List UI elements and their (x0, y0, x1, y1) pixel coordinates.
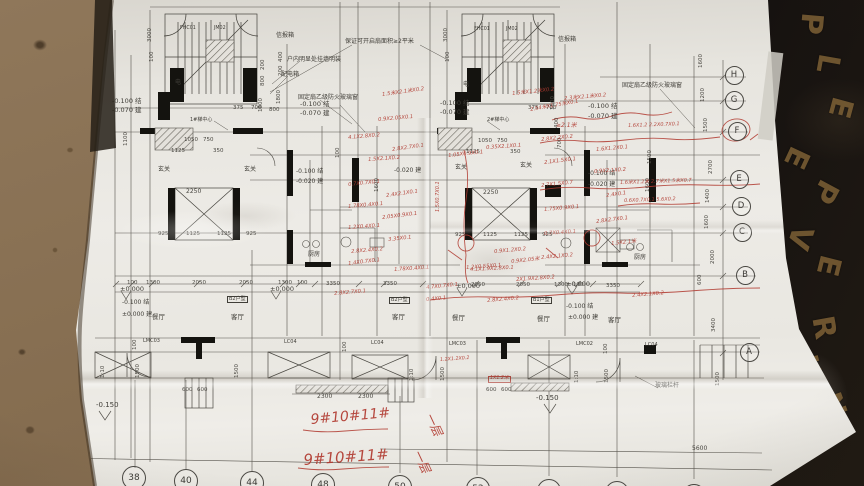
plan-label: -0.070 建 (588, 113, 618, 120)
plan-label: B1户型 (532, 298, 551, 303)
plan-label: 客厅 (231, 314, 244, 321)
plan-label: -0.020 建 (394, 168, 421, 174)
red-annotation: 1.2X1.2X0.2 (440, 357, 470, 364)
dim-label: 600 (197, 388, 208, 394)
red-annotation: 1.4X0.7X0.1 (348, 258, 380, 267)
dim-label: 100 (127, 281, 138, 287)
dim-label: 375 (233, 106, 244, 112)
dim-label: 1300 (278, 281, 292, 287)
grid-bubble-number: 44 (240, 471, 264, 486)
dim-label: 1125 (186, 232, 200, 238)
dim-label: 2300 (317, 394, 332, 400)
dim-label: 1500 (648, 150, 654, 164)
dim-label: 600 (698, 275, 704, 286)
plan-label: 信报箱 (558, 37, 576, 43)
red-annotation: 1.6X1.2 2.2X0.7X0.1 (628, 122, 680, 129)
plan-label: -0.100 结 (440, 100, 470, 107)
dim-label: 2050 (516, 283, 530, 289)
dim-label: 100 (446, 52, 452, 63)
plan-label: 固定扇乙级防火玻璃窗 (622, 83, 682, 89)
plan-label: 餐厅 (537, 316, 550, 323)
dim-label: 1100 (124, 132, 130, 146)
board-letter: R (804, 313, 842, 342)
grid-bubble-number: 40 (174, 469, 198, 486)
dim-label: 600 (486, 388, 497, 394)
board-letter: P (793, 11, 830, 36)
red-annotation: 1.5X2.1米 (611, 239, 637, 247)
plan-label: -0.100 结 (300, 101, 330, 108)
dim-label: 1500 (136, 364, 142, 378)
red-annotation: 一层 (423, 411, 444, 438)
plan-label: LC04 (371, 341, 384, 346)
red-annotation: 2.8X2.7X0.1 (334, 289, 366, 297)
red-annotation: 1.5X0.7X0.1 (436, 181, 441, 212)
plan-label: 信报箱 (276, 33, 294, 39)
dim-label: 1300 (554, 283, 568, 289)
drawing-sheet: 信报箱信报箱保证可开启扇面积≥2平米户内明显处挂墙明装配电箱固定扇乙级防火玻璃窗… (0, 0, 864, 486)
red-annotation: 0.4X0.1 (426, 296, 446, 303)
red-annotation: 0.9X1.2X0.2 (494, 247, 526, 255)
dim-label: 350 (510, 150, 521, 156)
dim-label: 100 (604, 344, 610, 355)
dim-label: 5600 (692, 446, 707, 452)
dim-label: 2050 (192, 281, 206, 287)
dim-label: 2700 (709, 160, 715, 174)
board-letter: L (809, 51, 847, 76)
grid-bubble-number: 52 (466, 477, 490, 486)
dim-label: 400 (279, 52, 285, 63)
red-annotation: 1.78X0.4X0.1 (348, 202, 383, 210)
plan-label: ±0.000 建 (122, 312, 152, 318)
dim-label: 600 (501, 388, 512, 394)
red-annotation: 4.1X2.8X0.2 (348, 133, 380, 141)
plan-label: -0.020 建 (296, 179, 323, 185)
red-annotation: 9#10#11# (310, 406, 391, 427)
dim-label: 1600 (705, 215, 711, 229)
dim-label: 3000 (444, 28, 450, 42)
plan-label: 餐厅 (452, 315, 465, 322)
red-annotation: 3.35X0.1 (388, 236, 412, 244)
plan-label: 户内明显处挂墙明装 (287, 57, 341, 63)
dim-label: 600 (182, 388, 193, 394)
dim-label: 1800 (277, 90, 283, 104)
dim-label: 1500 (605, 369, 611, 383)
red-annotation: 2.4X2.1X0.2 (541, 253, 573, 261)
dim-label: 1200 (701, 88, 707, 102)
plan-label: B2户型 (228, 297, 247, 302)
plan-label: 玻璃栏杆 (655, 383, 679, 389)
plan-label: LMC03 (143, 339, 160, 344)
red-annotation: 2.3米X2.1米X0.2 (564, 93, 607, 102)
dim-label: 1400 (706, 189, 712, 203)
plan-label: 客厅 (608, 317, 621, 324)
dim-label: 1:10 (575, 371, 581, 383)
plan-label: LC04 (645, 343, 658, 348)
grid-bubble-letter: H (725, 66, 744, 85)
photo-of-floor-plan: 信报箱信报箱保证可开启扇面积≥2平米户内明显处挂墙明装配电箱固定扇乙级防火玻璃窗… (0, 0, 864, 486)
red-annotation: 1.5米X2.1米X0.2 (382, 87, 425, 98)
plan-label: 电 (463, 82, 469, 88)
plan-label: -0.020 建 (588, 182, 615, 188)
dim-label: 3350 (606, 284, 620, 290)
dim-label: 750 (203, 138, 214, 144)
plan-label: 1#梯中心 (190, 118, 212, 123)
plan-label: ±0.000 (270, 286, 294, 293)
red-annotation: 2.8X2.7X0.1 (392, 144, 424, 154)
board-letter: E (821, 93, 860, 122)
dim-label: 1800 (259, 98, 265, 112)
grid-bubble-number: 48 (311, 473, 335, 486)
grid-bubble-number: 56 (605, 481, 629, 486)
plan-label: JM02 (214, 27, 226, 32)
red-annotation: 1.78X0.4X0.1 (394, 266, 429, 274)
red-annotation: 0.9X2.05米 (511, 257, 540, 265)
dim-label: 2050 (471, 283, 485, 289)
dim-label: 1:10 (410, 369, 416, 381)
grid-bubble-letter: D (732, 197, 751, 216)
plan-label: ±0.000 (120, 286, 144, 293)
red-annotation: 9#10#11# (303, 447, 389, 468)
dim-label: 1125 (514, 233, 528, 239)
plan-label: -0.150 (96, 402, 119, 409)
red-annotation: 2.4X2.1X0.1 (386, 190, 418, 200)
dim-label: 925 (455, 233, 466, 239)
grid-bubble-letter: F (728, 122, 747, 141)
red-annotation: 1.75X0.9X0.1 (544, 205, 579, 213)
plan-label: -0.070 建 (300, 110, 330, 117)
grid-bubble-letter: C (733, 223, 752, 242)
red-annotation: 0.9X2.05X0.1 (378, 115, 413, 123)
plan-label: LC04 (284, 340, 297, 345)
dim-label: 1:10 (101, 366, 107, 378)
dim-label: 200 (279, 66, 285, 77)
plan-label: -0.070 建 (440, 109, 470, 116)
plan-label: 厨房 (634, 255, 646, 261)
plan-label: 客厅 (392, 314, 405, 321)
dim-label: 1500 (235, 364, 241, 378)
dim-label: 1600 (699, 54, 705, 68)
red-annotation: 1X1.2米 (489, 377, 510, 382)
red-annotation: 2X1.9X2.8X0.2 (516, 275, 555, 283)
grid-bubble-number: 50 (388, 475, 412, 486)
dim-label: 3350 (383, 282, 397, 288)
dim-label: 2250 (186, 189, 201, 195)
grid-bubble-letter: G (725, 91, 744, 110)
dim-label: 100 (150, 52, 156, 63)
board-letter: E (809, 251, 848, 279)
dim-label: 1050 (184, 138, 198, 144)
grid-bubble-letter: E (730, 170, 749, 189)
plan-label: FHC01 (180, 27, 196, 32)
plan-label: -0.100 结 (296, 169, 323, 175)
annotation-layer: 信报箱信报箱保证可开启扇面积≥2平米户内明显处挂墙明装配电箱固定扇乙级防火玻璃窗… (0, 0, 864, 486)
red-annotation: 1.6米X1.2米 2.7米X1.5米X0.7 (620, 179, 692, 186)
dim-label: 800 (261, 76, 267, 87)
plan-label: 玄关 (455, 165, 467, 171)
dim-label: 100 (133, 340, 139, 351)
plan-label: 2#梯中心 (487, 118, 509, 123)
plan-label: -0.100 结 (112, 98, 142, 105)
dim-label: 100 (336, 148, 342, 159)
red-annotation: 4.7X0.7X0.1 (426, 283, 458, 292)
red-annotation: 1.2X0.4X0.1 (348, 224, 380, 231)
plan-label: 餐厅 (152, 314, 165, 321)
red-annotation: 2.4X2.1X0.2 (632, 291, 664, 299)
grid-bubble-letter: A (740, 343, 759, 362)
red-annotation: 2.8X2.4X0.2 (351, 247, 383, 255)
dim-label: 3350 (326, 282, 340, 288)
dim-label: 100 (573, 283, 584, 289)
plan-label: JM02 (506, 28, 518, 33)
red-annotation: 2.1X1.5X0.1 (544, 157, 576, 166)
red-annotation: 0.6X0.7X0.1 5.6X0.2 (624, 197, 676, 204)
dim-label: 925 (158, 232, 169, 238)
plan-label: ±0.000 建 (568, 315, 598, 321)
red-annotation: 一层 (411, 448, 432, 475)
plan-label: -0.100 结 (122, 300, 149, 306)
dim-label: 100 (343, 342, 349, 353)
dim-label: 1500 (441, 367, 447, 381)
red-annotation: 2.7X1.5X0.7 (541, 181, 573, 190)
red-annotation: 2.05X0.9X0.1 (382, 212, 418, 221)
red-annotation: ≥2.1米 (556, 123, 577, 129)
plan-label: B2户型 (390, 298, 409, 303)
dim-label: 1125 (171, 149, 185, 155)
plan-label: -0.150 (536, 395, 559, 402)
dim-label: 100 (297, 281, 308, 287)
dim-label: 1125 (483, 233, 497, 239)
dim-label: 200 (261, 60, 267, 71)
plan-label: -0.100 结 (566, 304, 593, 310)
plan-label: 玄关 (244, 167, 256, 173)
dim-label: 800 (269, 108, 280, 114)
dim-label: 1500 (716, 372, 722, 386)
dim-label: 1125 (217, 232, 231, 238)
red-annotation: 2.8X2.4X0.2 (487, 296, 519, 304)
board-letter: P (804, 174, 845, 210)
grid-bubble-number: 54 (537, 479, 561, 486)
dim-label: 925 (246, 232, 257, 238)
board-letter: V (779, 221, 819, 254)
dim-label: 350 (213, 149, 224, 155)
plan-label: 玄关 (520, 163, 532, 169)
red-annotation: 0.7X0.4X0.1 (544, 230, 576, 237)
red-annotation: 1.6X1.2X0.1 (596, 145, 628, 153)
plan-label: -0.100 结 (588, 103, 618, 110)
plan-label: FHC01 (474, 28, 490, 33)
dim-label: 2000 (711, 250, 717, 264)
red-annotation: 1.05X0.9X0.1 (448, 150, 484, 159)
plan-label: 保证可开启扇面积≥2平米 (345, 39, 414, 45)
dim-label: 3400 (712, 318, 718, 332)
red-annotation: 4.1X1.9X2.8X0.1 (470, 266, 514, 273)
red-annotation: 0.9X2.1X0.2 (594, 168, 626, 175)
plan-label: 电 (175, 80, 181, 86)
plan-label: LMC03 (449, 342, 466, 347)
dim-label: 2050 (239, 281, 253, 287)
plan-label: -0.070 建 (112, 107, 142, 114)
plan-label: 玄关 (158, 167, 170, 173)
plan-label: LMC02 (576, 342, 593, 347)
dim-label: 1500 (704, 118, 710, 132)
red-annotation: 1.5X2.1X0.2 (368, 156, 400, 163)
dim-label: 2300 (358, 394, 373, 400)
grid-bubble-number: 38 (122, 466, 146, 486)
dim-label: 2250 (483, 190, 498, 196)
dim-label: 3000 (148, 28, 154, 42)
board-letter: E (776, 141, 816, 174)
grid-bubble-letter: B (736, 266, 755, 285)
red-annotation: 2.8X2.7X0.1 (596, 216, 628, 225)
plan-label: 厨房 (308, 252, 320, 258)
red-annotation: 1.5米X1.2米X0.2 (512, 88, 555, 98)
dim-label: 1300 (146, 281, 160, 287)
